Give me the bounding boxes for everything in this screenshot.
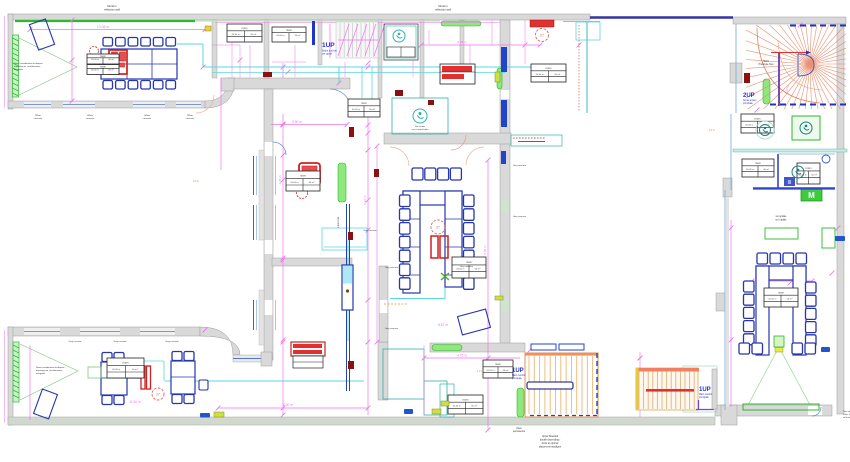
svg-text:6.10 m: 6.10 m bbox=[363, 195, 367, 205]
svg-text:concrete: concrete bbox=[34, 117, 43, 120]
svg-text:00.00 m: 00.00 m bbox=[91, 70, 99, 72]
svg-text:1UP: 1UP bbox=[512, 368, 524, 374]
svg-text:2UP: 2UP bbox=[743, 93, 755, 99]
svg-text:Mural in: Mural in bbox=[438, 4, 448, 8]
svg-text:27: 27 bbox=[156, 393, 160, 397]
svg-text:00 m²: 00 m² bbox=[787, 297, 793, 300]
svg-text:00 m²: 00 m² bbox=[763, 168, 769, 171]
svg-text:room: room bbox=[286, 28, 292, 32]
svg-text:disposing our considerations: disposing our considerations bbox=[14, 65, 40, 68]
svg-text:color, final: color, final bbox=[843, 413, 850, 416]
svg-text:room: room bbox=[463, 397, 469, 401]
svg-text:Main comfort: Main comfort bbox=[512, 374, 526, 377]
svg-text:00 m²: 00 m² bbox=[475, 268, 481, 271]
svg-text:00 m²: 00 m² bbox=[471, 404, 477, 407]
svg-text:8.87 m: 8.87 m bbox=[438, 323, 448, 327]
svg-text:No curate: No curate bbox=[415, 125, 425, 128]
svg-text:room: room bbox=[546, 66, 552, 70]
svg-text:Mural in: Mural in bbox=[107, 4, 117, 8]
svg-text:00.00 m: 00.00 m bbox=[453, 405, 461, 407]
svg-text:Grey concrete: Grey concrete bbox=[113, 340, 127, 343]
svg-text:00 m²: 00 m² bbox=[369, 108, 375, 111]
svg-text:27: 27 bbox=[540, 34, 544, 38]
svg-text:00.00 m: 00.00 m bbox=[769, 298, 777, 300]
svg-text:00 m²: 00 m² bbox=[811, 174, 817, 177]
svg-text:placement handltype: placement handltype bbox=[539, 446, 562, 449]
svg-text:White: White bbox=[35, 114, 41, 117]
svg-text:Main comfort: Main comfort bbox=[699, 393, 713, 396]
svg-text:room: room bbox=[300, 174, 306, 178]
svg-text:off installs: off installs bbox=[843, 416, 850, 419]
svg-text:Room consideration to dispose: Room consideration to dispose bbox=[14, 62, 43, 65]
svg-text:11.00 m: 11.00 m bbox=[129, 400, 141, 404]
svg-text:00.00 m: 00.00 m bbox=[291, 182, 299, 184]
svg-text:White: White bbox=[144, 114, 150, 117]
svg-text:5.90 m: 5.90 m bbox=[292, 120, 302, 124]
svg-text:Room consideration to dispose: Room consideration to dispose bbox=[36, 366, 65, 369]
svg-text:room: room bbox=[778, 290, 784, 294]
svg-text:2.2 m: 2.2 m bbox=[709, 129, 715, 132]
svg-text:M: M bbox=[808, 191, 815, 200]
svg-text:1.0 m: 1.0 m bbox=[477, 370, 483, 373]
svg-text:00 m²: 00 m² bbox=[295, 34, 301, 37]
svg-text:27: 27 bbox=[436, 226, 440, 230]
svg-text:principale: principale bbox=[699, 396, 710, 399]
svg-text:00 m²: 00 m² bbox=[108, 69, 114, 72]
svg-text:per guide: per guide bbox=[322, 53, 333, 56]
svg-text:00.00 m: 00.00 m bbox=[487, 370, 495, 372]
svg-text:00 m²: 00 m² bbox=[554, 73, 560, 76]
svg-text:room: room bbox=[361, 101, 367, 105]
svg-text:Prototype fires: Prototype fires bbox=[759, 63, 775, 66]
svg-text:10.08 m: 10.08 m bbox=[97, 25, 109, 29]
svg-text:alongside: alongside bbox=[36, 373, 46, 375]
svg-text:00.00 m: 00.00 m bbox=[352, 109, 360, 111]
svg-text:concrete: concrete bbox=[143, 117, 152, 120]
svg-text:room: room bbox=[755, 161, 761, 165]
svg-text:Accès arrière: Accès arrière bbox=[743, 99, 757, 102]
svg-text:permanente: permanente bbox=[513, 430, 526, 433]
svg-text:0.9 m: 0.9 m bbox=[193, 180, 199, 183]
svg-text:care curated after: care curated after bbox=[411, 128, 428, 131]
svg-text:concrete: concrete bbox=[86, 117, 95, 120]
svg-text:00.00 m: 00.00 m bbox=[277, 35, 285, 37]
svg-text:White: White bbox=[87, 114, 93, 117]
svg-text:00 m²: 00 m² bbox=[132, 368, 138, 371]
svg-text:00.00 m: 00.00 m bbox=[457, 269, 465, 271]
svg-text:room: room bbox=[100, 54, 106, 58]
svg-text:Grey concrete: Grey concrete bbox=[363, 229, 377, 232]
svg-text:00 m²: 00 m² bbox=[503, 369, 509, 372]
svg-text:alongside: alongside bbox=[14, 69, 24, 71]
svg-text:4.75 m: 4.75 m bbox=[457, 354, 467, 358]
svg-text:room: room bbox=[806, 166, 812, 170]
svg-text:00.00 m: 00.00 m bbox=[536, 74, 544, 76]
svg-text:Open: Open bbox=[516, 428, 522, 430]
svg-text:FIRE HOSE: FIRE HOSE bbox=[338, 216, 340, 227]
svg-text:5.08 m: 5.08 m bbox=[483, 245, 487, 255]
svg-text:room: room bbox=[123, 361, 129, 365]
svg-text:1UP: 1UP bbox=[322, 42, 335, 49]
svg-text:reflection wall: reflection wall bbox=[104, 8, 120, 12]
svg-text:Two with: Two with bbox=[843, 410, 850, 413]
svg-text:room: room bbox=[755, 116, 761, 120]
svg-text:00 m²: 00 m² bbox=[108, 58, 114, 61]
svg-text:Grey concrete: Grey concrete bbox=[385, 266, 399, 269]
svg-text:00.00 m: 00.00 m bbox=[745, 124, 753, 126]
svg-text:disposing our considerations: disposing our considerations bbox=[36, 369, 62, 372]
svg-text:00 m²: 00 m² bbox=[250, 33, 256, 36]
svg-text:00.00 m: 00.00 m bbox=[746, 169, 754, 171]
svg-text:00 m²: 00 m² bbox=[309, 181, 315, 184]
svg-text:room: room bbox=[466, 260, 472, 264]
svg-text:White: White bbox=[187, 114, 193, 117]
svg-text:1UP: 1UP bbox=[699, 387, 711, 393]
svg-text:Grey concrete: Grey concrete bbox=[165, 340, 179, 343]
svg-text:00.00 m: 00.00 m bbox=[232, 34, 240, 36]
svg-text:principale: principale bbox=[512, 377, 523, 380]
svg-text:Grey concrete: Grey concrete bbox=[513, 164, 527, 167]
svg-text:room: room bbox=[242, 26, 248, 30]
svg-text:no l'update: no l'update bbox=[775, 219, 787, 222]
svg-text:Grey concrete: Grey concrete bbox=[460, 265, 474, 268]
svg-text:Grey concrete: Grey concrete bbox=[513, 215, 527, 218]
svg-text:5.82 m: 5.82 m bbox=[457, 40, 467, 44]
svg-text:reflection wall: reflection wall bbox=[435, 8, 451, 12]
svg-text:sur update: sur update bbox=[776, 215, 788, 218]
svg-text:8.00 m: 8.00 m bbox=[283, 403, 293, 407]
svg-text:room: room bbox=[100, 64, 106, 68]
svg-text:00.00 m: 00.00 m bbox=[91, 59, 99, 61]
svg-text:Grey concrete: Grey concrete bbox=[385, 327, 399, 330]
svg-text:Grey concrete: Grey concrete bbox=[68, 340, 82, 343]
svg-text:Stairs: Stairs bbox=[763, 60, 770, 63]
svg-text:4.35 m: 4.35 m bbox=[278, 175, 282, 185]
svg-text:room: room bbox=[495, 362, 501, 366]
svg-text:principale: principale bbox=[743, 102, 754, 105]
svg-text:concrete: concrete bbox=[186, 117, 195, 120]
svg-text:00.00 m: 00.00 m bbox=[112, 369, 120, 371]
